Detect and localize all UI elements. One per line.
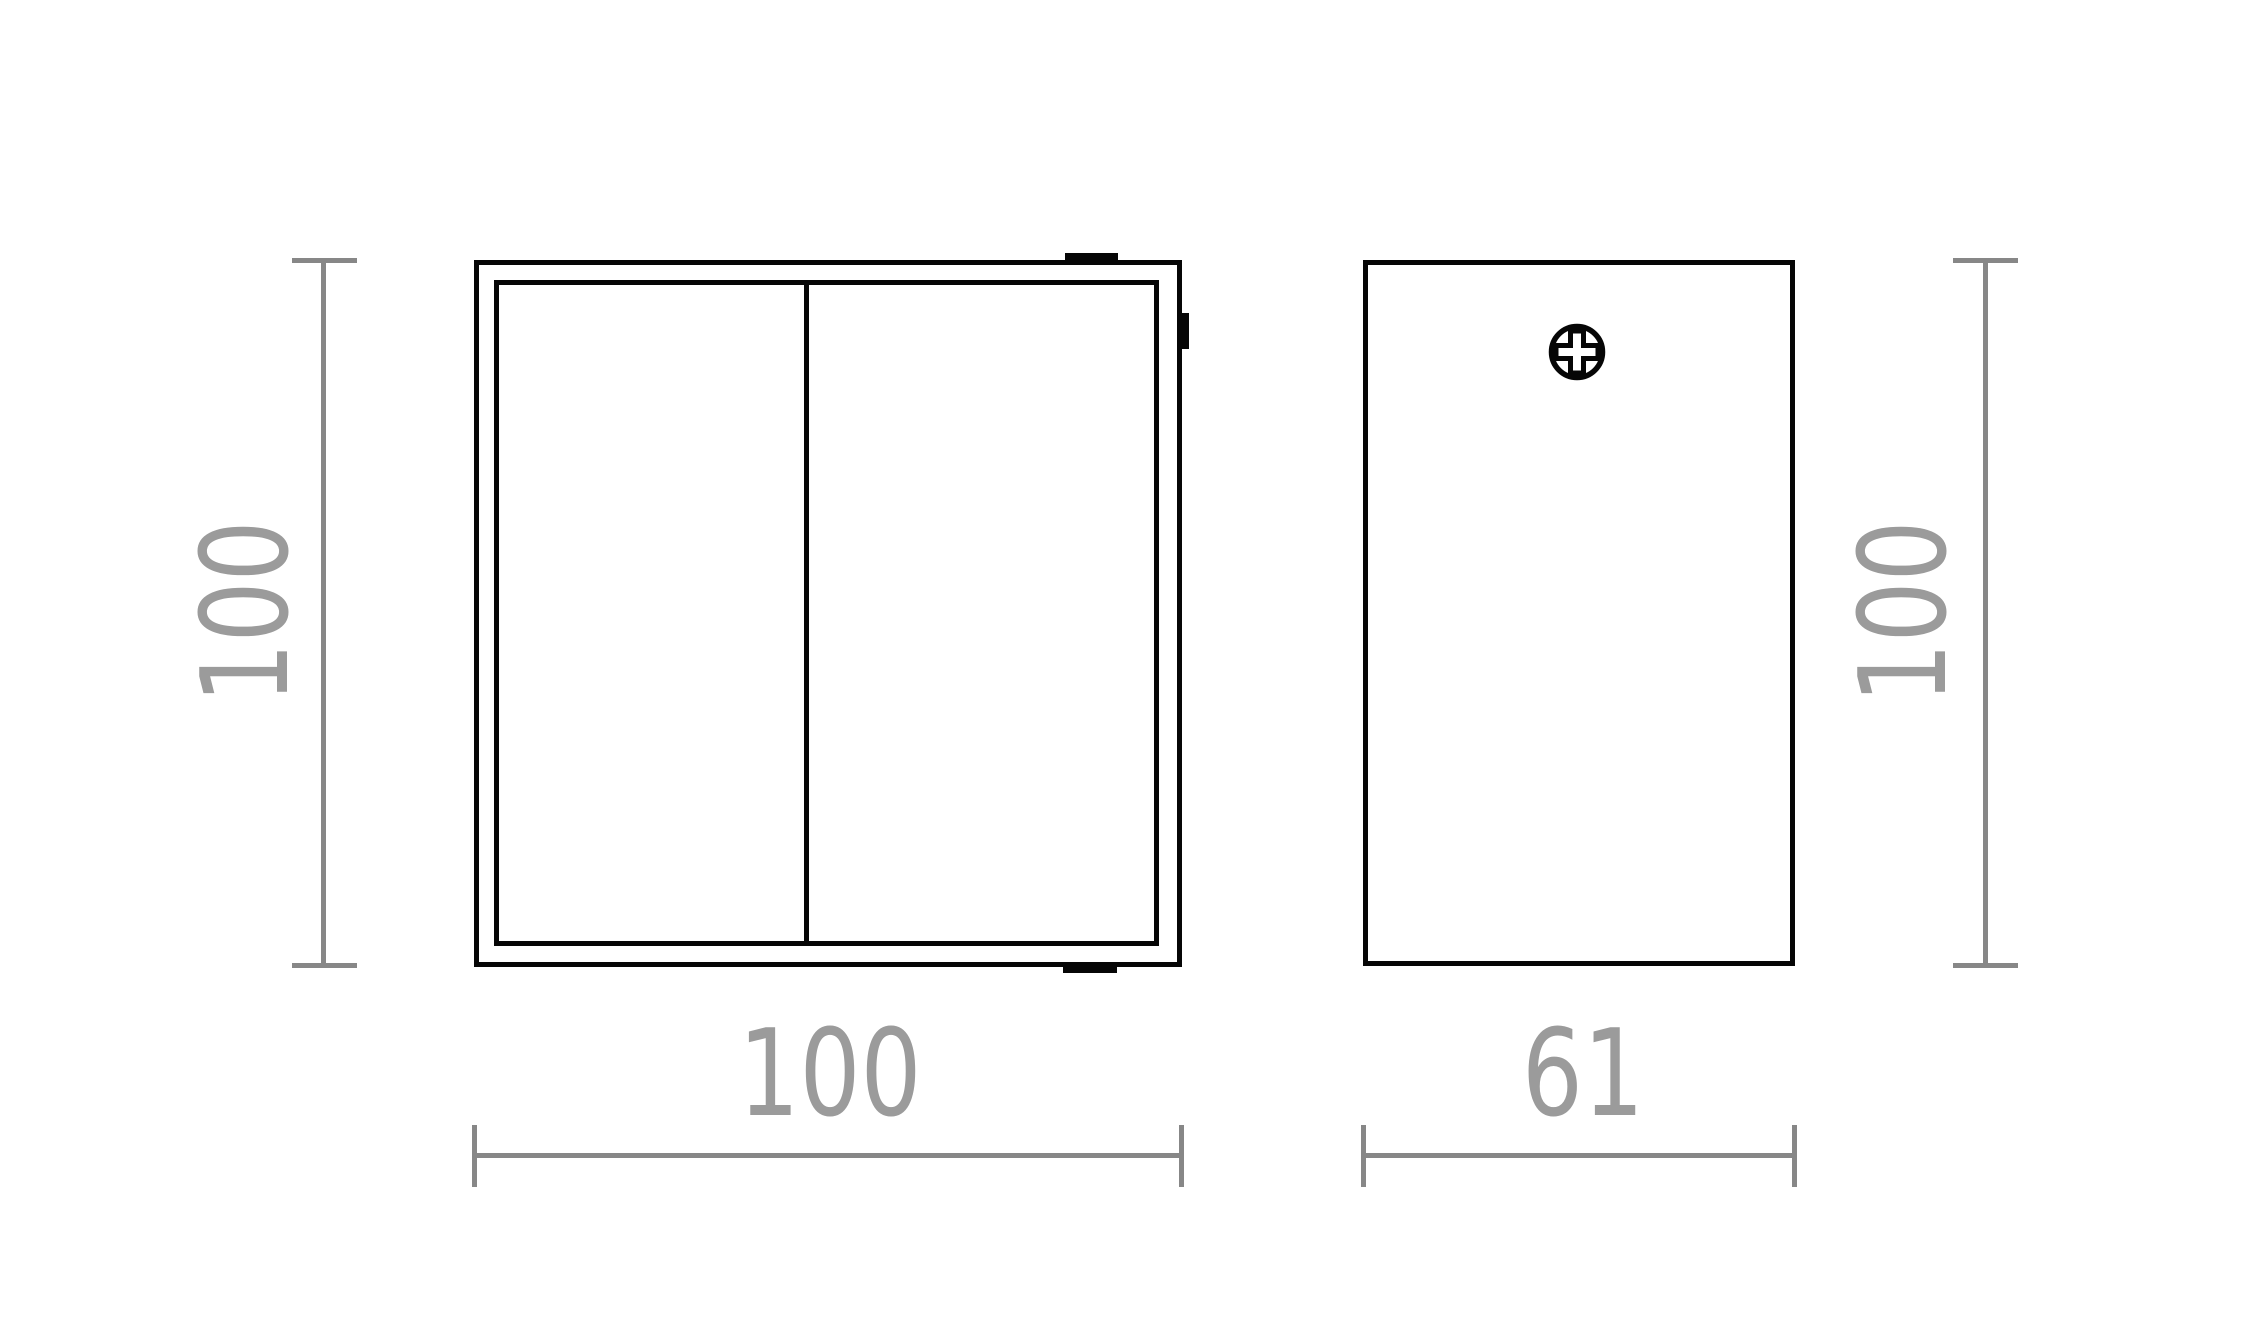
front-width-dimension-label: 100 bbox=[738, 1015, 921, 1135]
front-view-center-divider-line bbox=[804, 282, 809, 944]
side-height-dimension-tick-bottom bbox=[1953, 963, 2018, 968]
front-width-dimension-line bbox=[474, 1153, 1182, 1158]
side-width-dimension-tick-left bbox=[1361, 1125, 1366, 1187]
front-height-dimension-tick-bottom bbox=[292, 963, 357, 968]
side-height-dimension-tick-top bbox=[1953, 258, 2018, 263]
front-width-dimension-tick-left bbox=[472, 1125, 477, 1187]
front-view-bottom-tab-detail bbox=[1063, 966, 1117, 973]
side-height-dimension-label: 100 bbox=[1845, 520, 1965, 703]
front-height-dimension-label: 100 bbox=[187, 520, 307, 703]
front-height-dimension-line bbox=[321, 260, 326, 966]
side-width-dimension-tick-right bbox=[1792, 1125, 1797, 1187]
side-height-dimension-line bbox=[1983, 260, 1988, 966]
phillips-screw-head-icon bbox=[1545, 320, 1609, 384]
dimension-drawing-canvas: 100 100 100 61 bbox=[0, 0, 2268, 1323]
side-width-dimension-label: 61 bbox=[1522, 1015, 1644, 1135]
front-height-dimension-tick-top bbox=[292, 258, 357, 263]
front-view-inner-panel-outline bbox=[494, 280, 1159, 946]
front-width-dimension-tick-right bbox=[1179, 1125, 1184, 1187]
front-view-top-tab-detail bbox=[1065, 253, 1118, 261]
side-width-dimension-line bbox=[1363, 1153, 1795, 1158]
front-view-right-tab-detail bbox=[1182, 313, 1189, 349]
